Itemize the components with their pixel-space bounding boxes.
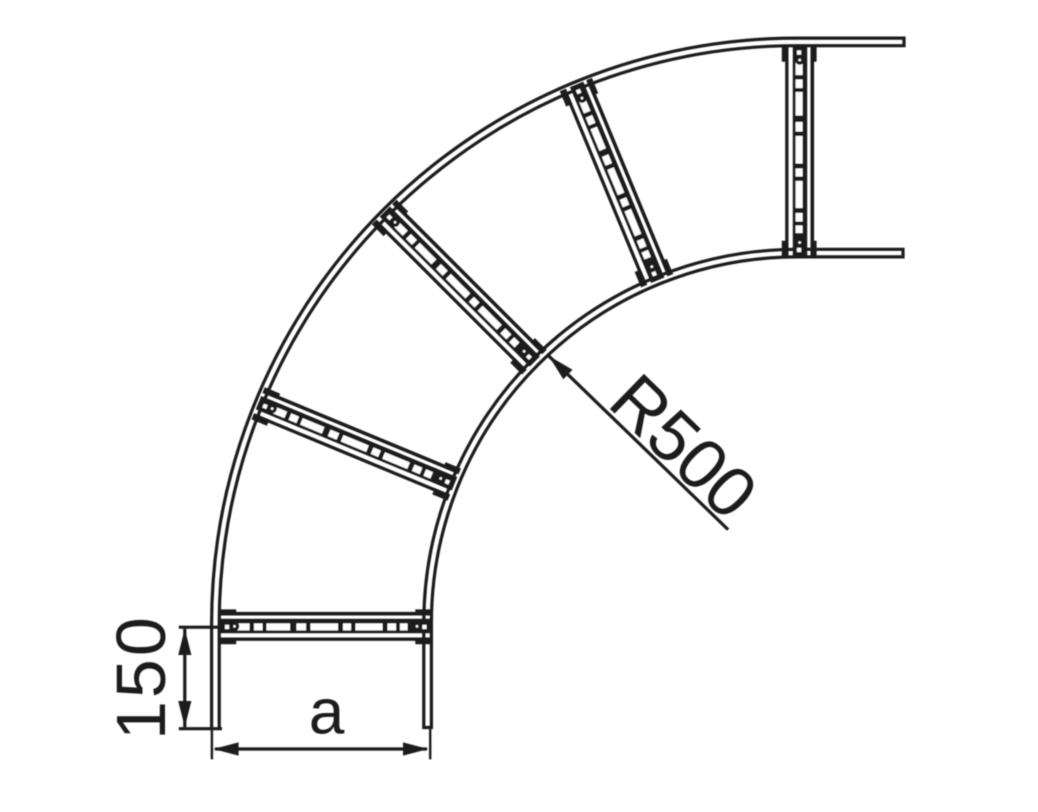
svg-text:R500: R500 bbox=[595, 360, 772, 535]
svg-text:a: a bbox=[309, 676, 345, 748]
svg-text:150: 150 bbox=[102, 614, 180, 740]
